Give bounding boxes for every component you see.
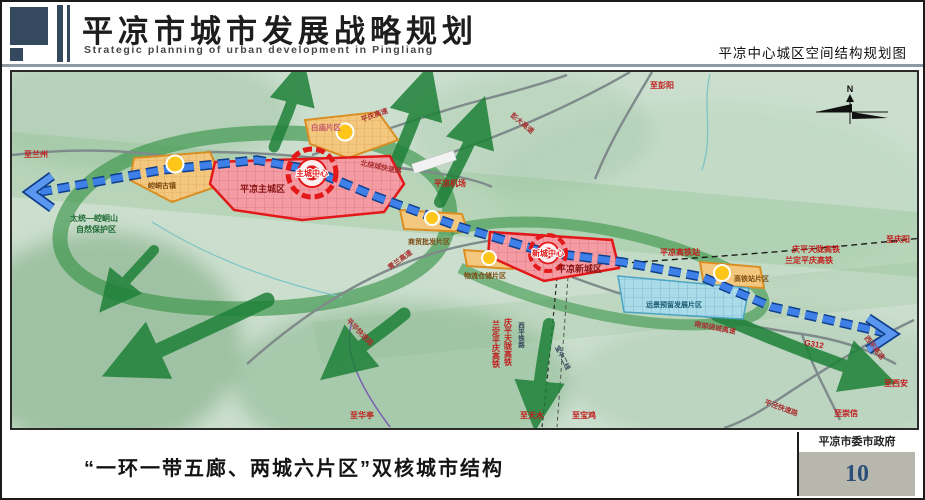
label-trade: 商贸批发片区: [408, 237, 450, 246]
label-ldpq-hsr: 兰定平庆高铁: [785, 255, 833, 265]
label-hsr-station: 平凉高铁站: [660, 247, 700, 257]
compass-north-label: N: [847, 84, 854, 94]
decor-bar-1: [57, 5, 63, 62]
header-rule: [2, 64, 923, 67]
dir-tianshui: 至天水: [520, 410, 545, 420]
dir-qingyang: 至庆阳: [886, 234, 910, 244]
label-nature-reserve-2: 自然保护区: [76, 224, 116, 234]
page-subtitle: Strategic planning of urban development …: [84, 44, 434, 56]
node-kongtong-icon: [167, 156, 184, 173]
footer: “一环一带五廊、两城六片区”双核城市结构 平凉市委市政府 10: [2, 430, 923, 498]
decor-square-large: [10, 7, 48, 45]
label-new-core: 新城中心: [532, 248, 564, 258]
page-number: 10: [799, 452, 915, 496]
plan-page: 平凉市城市发展战略规划 Strategic planning of urban …: [0, 0, 925, 500]
label-hsr-area: 高铁站片区: [734, 274, 769, 283]
label-main-core: 主城中心: [296, 168, 328, 178]
dir-chongxin: 至崇信: [834, 408, 858, 418]
label-qptl-hsr: 庆平天陇高铁: [791, 244, 840, 254]
label-qptl-hsr-vertical: 庆平天陇高铁: [503, 317, 513, 367]
header: 平凉市城市发展战略规划 Strategic planning of urban …: [2, 2, 923, 64]
map-canvas: N 至兰州 至彭阳 至庆阳 至华亭 至天水 至宝鸡 至西安 至崇信 平凉机场 平…: [10, 70, 919, 430]
node-hsr-icon: [714, 265, 730, 281]
agency-name: 平凉市委市政府: [799, 432, 915, 452]
label-kongtong-town: 崆峒古镇: [148, 181, 176, 190]
label-ldpq-hsr-vertical: 兰定平庆高铁: [492, 319, 501, 369]
label-main-city: 平凉主城区: [240, 183, 285, 194]
label-nature-reserve-1: 太统—崆峒山: [69, 213, 118, 223]
decor-bar-2: [67, 5, 70, 62]
label-new-city: 平凉新城区: [557, 263, 602, 274]
dir-xian: 至西安: [884, 378, 908, 388]
page-stamp-box: 平凉市委市政府 10: [797, 432, 915, 496]
dir-baoji: 至宝鸡: [572, 410, 596, 420]
dir-huating: 至华亭: [350, 410, 374, 420]
dir-lanzhou: 至兰州: [24, 149, 48, 159]
label-logistics: 物流仓储片区: [464, 271, 506, 280]
dir-pengyang: 至彭阳: [650, 80, 674, 90]
structure-caption: “一环一带五廊、两城六片区”双核城市结构: [84, 452, 504, 481]
label-airport: 平凉机场: [434, 178, 466, 188]
node-logistics-icon: [482, 251, 496, 265]
plan-map-svg: N 至兰州 至彭阳 至庆阳 至华亭 至天水 至宝鸡 至西安 至崇信 平凉机场 平…: [12, 72, 917, 428]
node-trade-icon: [425, 211, 439, 225]
map-sheet-title: 平凉中心城区空间结构规划图: [719, 42, 908, 62]
label-reserved: 远景预留发展片区: [646, 300, 702, 309]
decor-square-small: [10, 48, 23, 61]
label-baimiao: 白庙片区: [311, 122, 341, 132]
